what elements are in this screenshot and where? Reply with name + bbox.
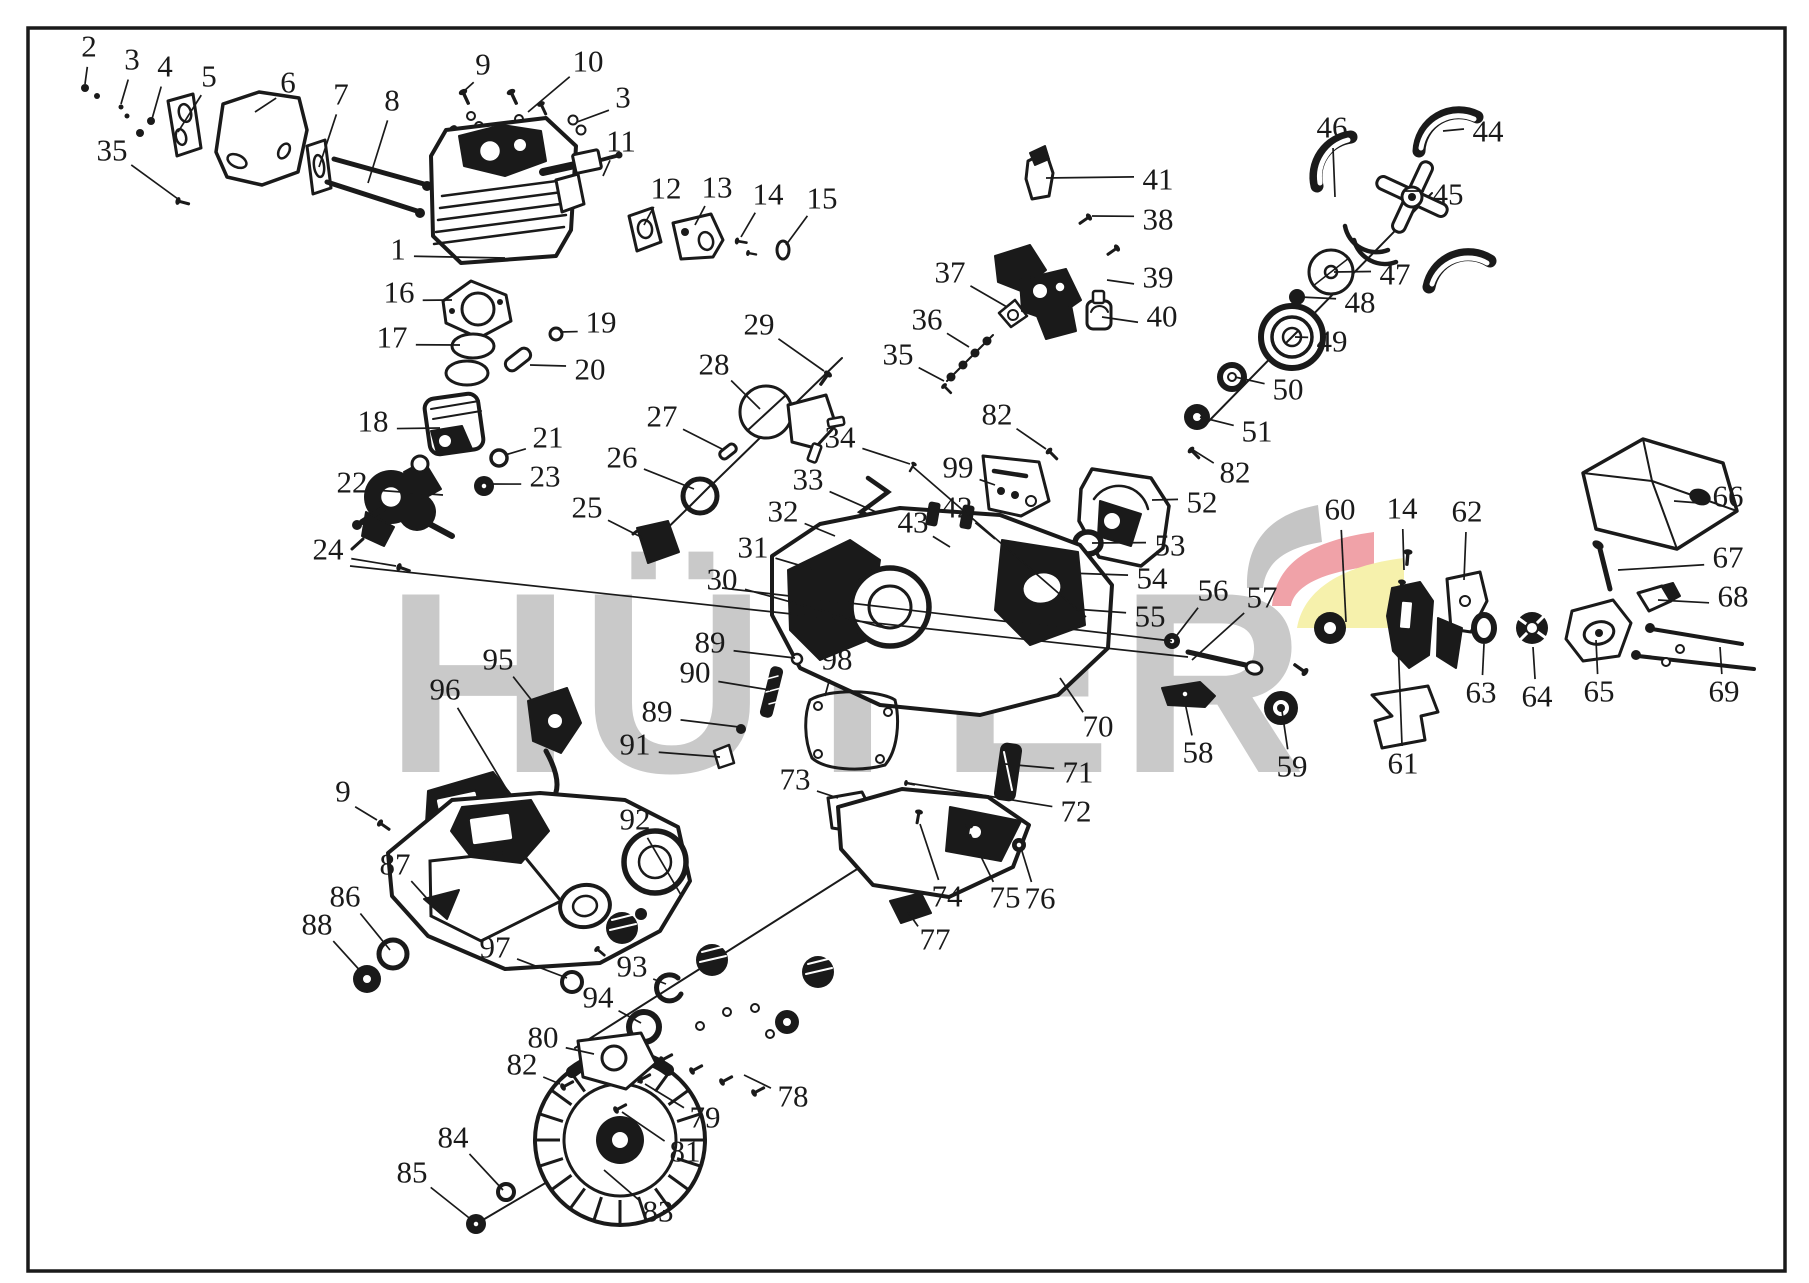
callout-label-11-11: 11 <box>606 124 636 159</box>
callout-label-77-97: 77 <box>920 922 951 957</box>
screw-icon <box>746 250 758 258</box>
callout-label-8-6: 8 <box>384 83 400 118</box>
leader-line-20 <box>530 365 566 366</box>
leader-line-41 <box>1046 177 1134 178</box>
callout-label-69-79: 69 <box>1709 674 1740 709</box>
leader-line-62 <box>1464 532 1466 580</box>
callout-label-61-83: 61 <box>1388 746 1419 781</box>
part-shape <box>125 114 130 119</box>
screw-head <box>746 250 751 257</box>
callout-label-47-54: 47 <box>1380 257 1411 292</box>
callout-label-22-23: 22 <box>337 465 368 500</box>
part-shape <box>1103 512 1121 530</box>
callout-label-59-69: 59 <box>1277 749 1308 784</box>
callout-label-82-59: 82 <box>982 397 1013 432</box>
callout-label-72-72: 72 <box>1061 794 1092 829</box>
part-shape <box>513 138 527 152</box>
screw-icon <box>688 1062 705 1076</box>
part-shape <box>362 974 372 984</box>
callout-label-63-80: 63 <box>1466 675 1497 710</box>
callout-label-23-24: 23 <box>530 459 561 494</box>
callout-label-82-61: 82 <box>1220 455 1251 490</box>
callout-label-6-4: 6 <box>280 65 296 100</box>
parts-diagram-canvas: HÜTER 2345678359103111213141511617181920… <box>0 0 1809 1283</box>
callout-label-50-57: 50 <box>1273 372 1304 407</box>
callout-label-5-3: 5 <box>201 59 217 94</box>
part-shape <box>1638 656 1754 669</box>
callout-label-94-92: 94 <box>583 980 615 1015</box>
leader-line-3 <box>121 80 128 104</box>
part-shape <box>947 373 956 382</box>
callout-label-19-20: 19 <box>586 305 617 340</box>
part-shape <box>467 112 475 120</box>
leader-line-4 <box>152 87 161 119</box>
leader-line-10 <box>528 77 570 112</box>
leader-line-37 <box>970 286 1007 307</box>
callout-label-3-1: 3 <box>124 42 140 77</box>
callout-label-75-95: 75 <box>990 880 1021 915</box>
callout-label-83-105: 83 <box>643 1194 674 1229</box>
part-shape <box>1652 629 1742 644</box>
part-shape <box>1460 596 1470 606</box>
part-shape <box>334 159 424 184</box>
part-shape <box>119 105 124 110</box>
leader-line-11 <box>603 160 610 176</box>
screw-head <box>734 237 739 245</box>
leader-line-76 <box>1021 848 1031 882</box>
callout-label-78-98: 78 <box>778 1079 809 1114</box>
part-shape <box>479 140 501 162</box>
callout-label-90-39: 90 <box>680 655 711 690</box>
callout-label-58-68: 58 <box>1183 735 1214 770</box>
callout-label-38-45: 38 <box>1143 202 1174 237</box>
leader-line-2 <box>85 67 87 84</box>
leader-line-88 <box>333 941 364 975</box>
part-shape <box>890 893 931 923</box>
part-shape <box>736 724 746 734</box>
part-shape <box>1645 623 1655 633</box>
callout-label-81-100: 81 <box>670 1134 701 1169</box>
part-shape <box>792 654 802 664</box>
part-shape <box>718 442 738 460</box>
callout-label-79-99: 79 <box>690 1100 721 1135</box>
leader-line-21 <box>505 449 526 455</box>
part-shape <box>556 174 584 212</box>
callout-label-14-74: 14 <box>1387 491 1419 526</box>
callout-label-3-10: 3 <box>615 80 631 115</box>
callout-label-56-66: 56 <box>1198 573 1229 608</box>
part-shape <box>611 1131 629 1149</box>
part-shape <box>473 1221 479 1227</box>
part-shape <box>147 117 155 125</box>
leader-line-18 <box>397 428 440 429</box>
callout-label-48-55: 48 <box>1345 285 1376 320</box>
callout-label-85-104: 85 <box>397 1155 428 1190</box>
screw-icon <box>816 369 833 388</box>
callout-label-84-103: 84 <box>438 1120 470 1155</box>
callout-label-13-13: 13 <box>702 170 733 205</box>
part-shape <box>1345 226 1388 252</box>
part-shape <box>1008 310 1018 320</box>
callout-label-33-32: 33 <box>793 462 824 497</box>
part-shape <box>1228 373 1236 381</box>
callout-label-52-62: 52 <box>1187 485 1218 520</box>
callout-label-29-30: 29 <box>744 307 775 342</box>
leader-line-78 <box>744 1075 771 1088</box>
part-shape <box>1372 686 1438 748</box>
screw-icon <box>734 237 748 246</box>
callout-label-32-33: 32 <box>768 494 799 529</box>
leader-line-34 <box>862 448 910 464</box>
leader-line-67 <box>1618 565 1704 570</box>
leader-line-84 <box>469 1154 503 1190</box>
callout-label-27-28: 27 <box>647 399 678 434</box>
callout-label-24-25: 24 <box>313 532 345 567</box>
part-shape <box>1032 283 1048 299</box>
callout-label-35-50: 35 <box>883 337 914 372</box>
part-shape <box>983 456 1049 516</box>
callout-label-76-96: 76 <box>1025 881 1056 916</box>
part-shape <box>415 208 425 218</box>
part-shape <box>94 93 100 99</box>
part-shape <box>438 434 452 448</box>
part-shape <box>1055 282 1065 292</box>
callout-label-96-85: 96 <box>430 672 461 707</box>
callout-label-9-8: 9 <box>475 47 491 82</box>
callout-label-17-18: 17 <box>377 320 408 355</box>
screw-icon <box>1105 243 1122 258</box>
callout-label-60-73: 60 <box>1325 492 1356 527</box>
part-shape <box>1526 622 1538 634</box>
callout-label-31-34: 31 <box>738 530 769 565</box>
callout-label-10-9: 10 <box>573 44 604 79</box>
part-shape <box>959 361 968 370</box>
callout-label-2-0: 2 <box>81 29 97 64</box>
part-shape <box>449 308 455 314</box>
callout-label-36-49: 36 <box>912 302 943 337</box>
part-shape <box>696 1022 704 1030</box>
part-shape <box>1631 650 1641 660</box>
callout-label-97-90: 97 <box>480 930 511 965</box>
part-shape <box>577 126 586 135</box>
part-shape <box>424 521 452 536</box>
callout-label-68-78: 68 <box>1718 579 1749 614</box>
part-shape <box>1035 305 1076 339</box>
part-shape <box>491 450 507 466</box>
part-shape <box>497 299 503 305</box>
part-shape <box>547 713 563 729</box>
part-shape <box>766 1030 774 1038</box>
leader-line-52 <box>1152 499 1178 500</box>
callout-label-65-82: 65 <box>1584 674 1615 709</box>
part-shape <box>327 182 417 211</box>
callout-label-57-67: 57 <box>1247 580 1278 615</box>
callout-label-21-22: 21 <box>533 420 564 455</box>
callout-label-93-91: 93 <box>617 949 648 984</box>
leader-line-82 <box>1017 429 1046 449</box>
part-shape <box>452 334 494 358</box>
part-shape <box>723 1008 731 1016</box>
callout-label-30-35: 30 <box>707 562 738 597</box>
part-shape <box>1600 549 1610 589</box>
leader-line-9 <box>355 807 377 820</box>
callout-label-25-26: 25 <box>572 490 603 525</box>
part-shape <box>1182 691 1188 697</box>
callout-label-40-47: 40 <box>1147 299 1178 334</box>
part-shape <box>1323 621 1337 635</box>
part-shape <box>1011 491 1019 499</box>
callout-label-1-16: 1 <box>390 232 406 267</box>
callout-label-43-36: 43 <box>898 505 929 540</box>
part-shape <box>503 346 533 373</box>
callout-label-34-31: 34 <box>825 420 857 455</box>
callout-label-20-21: 20 <box>575 352 606 387</box>
part-shape <box>352 539 363 549</box>
callout-label-99-60: 99 <box>943 450 974 485</box>
part-shape <box>876 755 884 763</box>
callout-label-49-56: 49 <box>1317 324 1348 359</box>
leader-line-26 <box>644 469 694 489</box>
callout-label-66-76: 66 <box>1713 479 1744 514</box>
callout-label-67-77: 67 <box>1713 540 1744 575</box>
callout-label-12-12: 12 <box>651 171 682 206</box>
callout-label-73-43: 73 <box>780 762 811 797</box>
callout-label-98-42: 98 <box>822 642 853 677</box>
leader-line-9 <box>463 82 474 92</box>
part-shape <box>1408 193 1416 201</box>
callout-label-51-58: 51 <box>1242 414 1273 449</box>
screw-icon <box>1077 212 1094 227</box>
part-shape <box>1399 601 1413 630</box>
callout-label-26-27: 26 <box>607 440 638 475</box>
callout-label-55-65: 55 <box>1135 599 1166 634</box>
callout-label-64-81: 64 <box>1522 679 1554 714</box>
leader-line-63 <box>1482 644 1484 675</box>
screw-icon <box>1044 446 1060 462</box>
leader-line-69 <box>1720 647 1722 674</box>
callout-label-4-2: 4 <box>157 49 173 84</box>
callout-label-9-86: 9 <box>335 774 351 809</box>
callout-label-71-71: 71 <box>1063 755 1094 790</box>
callout-label-54-64: 54 <box>1137 561 1169 596</box>
leader-line-35 <box>919 368 944 381</box>
screw-icon <box>940 382 954 396</box>
callout-label-35-7: 35 <box>97 133 128 168</box>
callout-label-74-94: 74 <box>932 879 964 914</box>
part-shape <box>884 708 892 716</box>
callout-label-45-53: 45 <box>1433 177 1464 212</box>
part-shape <box>550 328 562 340</box>
callout-label-92-93: 92 <box>620 802 651 837</box>
part-shape <box>468 812 513 846</box>
leader-line-39 <box>1107 280 1134 284</box>
callout-label-46-51: 46 <box>1317 110 1348 145</box>
callout-label-37-48: 37 <box>935 255 966 290</box>
callout-label-39-46: 39 <box>1143 260 1174 295</box>
part-shape <box>1026 496 1036 506</box>
callout-label-86-88: 86 <box>330 879 361 914</box>
leader-line-15 <box>786 216 807 245</box>
leader-line-86 <box>360 914 390 950</box>
part-shape <box>562 972 582 992</box>
leader-line-27 <box>683 429 722 449</box>
part-shape <box>216 92 307 185</box>
screw-head <box>1403 549 1412 555</box>
leader-line-29 <box>778 339 824 371</box>
part-shape <box>635 908 647 920</box>
leader-line-64 <box>1533 647 1535 679</box>
leader-line-46 <box>1333 148 1335 197</box>
callout-label-28-29: 28 <box>699 347 730 382</box>
callout-label-14-14: 14 <box>753 177 785 212</box>
callout-label-42-37: 42 <box>942 490 973 525</box>
leader-line-85 <box>431 1187 473 1221</box>
leader-line-36 <box>947 333 969 347</box>
part-shape <box>1093 291 1104 303</box>
part-shape <box>380 486 402 508</box>
exploded-parts-diagram-page: HÜTER 2345678359103111213141511617181920… <box>0 0 1809 1283</box>
part-shape <box>814 702 822 710</box>
callout-label-53-63: 53 <box>1155 528 1186 563</box>
part-shape <box>572 150 601 174</box>
part-shape <box>1277 704 1285 712</box>
leader-line-44 <box>1443 129 1464 131</box>
callout-label-89-40: 89 <box>642 694 673 729</box>
part-shape <box>1595 629 1603 637</box>
part-shape <box>412 456 428 472</box>
callout-label-15-15: 15 <box>807 181 838 216</box>
leader-line-35 <box>131 165 178 199</box>
part-shape <box>481 483 487 489</box>
part-shape <box>1474 615 1494 641</box>
parts-layer <box>81 84 1754 1234</box>
leader-line-33 <box>830 492 876 512</box>
part-shape <box>446 361 488 385</box>
callout-label-82-102: 82 <box>507 1047 538 1082</box>
callout-label-41-44: 41 <box>1143 162 1174 197</box>
callout-label-70-70: 70 <box>1083 709 1114 744</box>
callout-label-88-89: 88 <box>302 907 333 942</box>
callout-label-7-5: 7 <box>333 77 349 112</box>
leader-line-3 <box>577 110 609 122</box>
part-shape <box>1016 842 1022 848</box>
part-shape <box>681 228 689 236</box>
callout-label-87-87: 87 <box>380 847 411 882</box>
part-shape <box>1676 645 1684 653</box>
part-shape <box>569 116 578 125</box>
part-shape <box>136 129 144 137</box>
leader-line-14 <box>741 213 755 237</box>
screw-icon <box>506 88 521 107</box>
part-shape <box>983 337 992 346</box>
callout-label-95-84: 95 <box>483 642 514 677</box>
part-shape <box>814 750 822 758</box>
callout-label-44-52: 44 <box>1473 114 1505 149</box>
part-shape <box>379 940 407 968</box>
part-shape <box>81 84 89 92</box>
part-shape <box>751 1004 759 1012</box>
part-shape <box>997 487 1005 495</box>
part-shape <box>629 208 661 251</box>
part-shape <box>1662 658 1670 666</box>
callout-label-18-19: 18 <box>358 404 389 439</box>
part-shape <box>971 349 980 358</box>
part-shape <box>352 520 362 530</box>
part-shape <box>462 293 494 325</box>
part-shape <box>602 1046 626 1070</box>
callout-label-91-41: 91 <box>620 727 651 762</box>
callout-label-16-17: 16 <box>384 275 415 310</box>
part-shape <box>782 1017 792 1027</box>
callout-label-62-75: 62 <box>1452 494 1483 529</box>
screw-icon <box>718 1073 735 1087</box>
